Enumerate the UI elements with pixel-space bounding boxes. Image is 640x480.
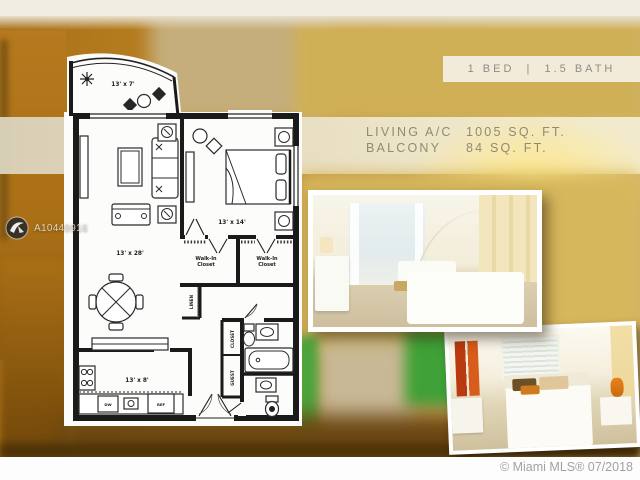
stat-label: LIVING A/C (366, 124, 466, 140)
coffee-table-icon (118, 148, 142, 186)
mls-watermark: A10449916 (5, 216, 88, 240)
toilet-icon (244, 324, 254, 331)
svg-text:REF: REF (157, 402, 166, 407)
wall-panels (479, 195, 537, 282)
fixture-icon (275, 128, 293, 146)
svg-text:Closet: Closet (258, 262, 276, 268)
chair-icon (109, 323, 123, 330)
mls-logo-icon (5, 216, 29, 240)
pillow-icon (276, 154, 286, 174)
sink-icon (256, 324, 278, 340)
sectional-sofa-icon (152, 138, 178, 198)
svg-text:Closet: Closet (197, 262, 215, 268)
sideboard (315, 256, 349, 311)
kitchen-dimension: 13' x 8' (125, 378, 149, 384)
pillow (539, 376, 568, 390)
bathtub-icon (245, 348, 293, 372)
bedroom-photo-content (448, 325, 637, 451)
stat-value: 1005 SQ. FT. (466, 124, 566, 140)
stove-icon (79, 366, 95, 390)
kitchen-sink-icon (124, 398, 138, 409)
floor-plan: 13' x 7' (60, 52, 305, 460)
stat-label: BALCONY (366, 140, 466, 156)
listing-collage: 13' x 7' (0, 0, 640, 480)
stat-value: 84 SQ. FT. (466, 140, 548, 156)
nightstand (600, 396, 632, 426)
tv-console-icon (80, 136, 88, 198)
dresser-icon (186, 152, 194, 202)
sqft-stats: LIVING A/C 1005 SQ. FT. BALCONY 84 SQ. F… (366, 124, 566, 156)
table-lamp (320, 237, 333, 253)
balcony-dimension: 13' x 7' (111, 82, 135, 88)
pillow (521, 385, 540, 395)
bedroom-photo (444, 321, 640, 455)
living-dimension: 13' x 28' (116, 251, 144, 257)
chair-icon (136, 295, 143, 309)
curtain (350, 203, 358, 285)
table-icon (193, 129, 207, 143)
chair-icon (89, 295, 96, 309)
chair-icon (109, 274, 123, 281)
dresser (451, 398, 484, 435)
background-top-fade (0, 16, 640, 30)
sink-icon (256, 378, 276, 392)
fixture-icon (275, 212, 293, 230)
sofa (407, 272, 523, 325)
sofa-icon (112, 204, 150, 225)
orange-lamp (610, 377, 624, 396)
wall-art (454, 341, 480, 396)
stat-row-balcony: BALCONY 84 SQ. FT. (366, 140, 566, 156)
mls-number: A10449916 (34, 223, 88, 234)
svg-text:GUEST: GUEST (230, 370, 235, 386)
bed-bath-bar: 1 BED | 1.5 BATH (443, 56, 640, 82)
pillow-icon (276, 180, 286, 200)
patio-table-icon (138, 95, 151, 108)
background-top-strip (0, 0, 640, 16)
svg-text:CLOSET: CLOSET (230, 330, 235, 348)
svg-text:DW: DW (104, 402, 112, 407)
bed (505, 372, 593, 449)
living-room-photo (308, 190, 542, 332)
svg-text:LINEN: LINEN (189, 294, 194, 309)
living-room-photo-content (313, 195, 537, 327)
stat-row-living: LIVING A/C 1005 SQ. FT. (366, 124, 566, 140)
copyright-text: © Miami MLS® 07/2018 (500, 460, 633, 474)
bed-bath-text: 1 BED | 1.5 BATH (468, 63, 616, 75)
footer-strip: © Miami MLS® 07/2018 (0, 457, 640, 480)
bedroom-dimension: 13' x 14' (218, 220, 246, 226)
